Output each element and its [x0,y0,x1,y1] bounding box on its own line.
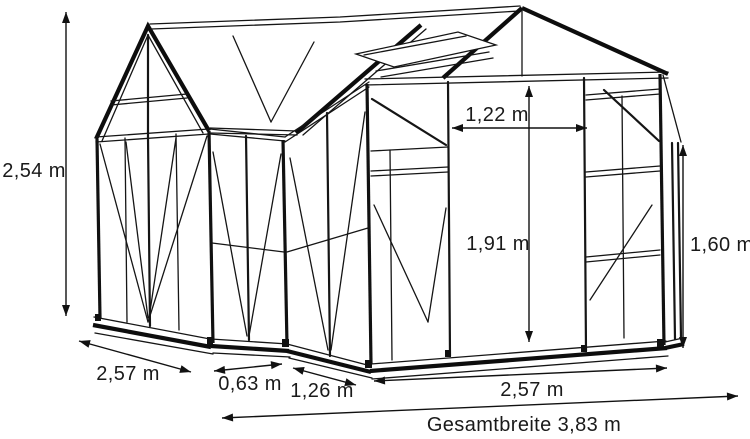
dimension-label-door-height: 1,91 m [466,233,530,255]
greenhouse-dimension-diagram: 2,54 m 1,22 m 1,91 m 1,60 m 2,57 m 0,63 … [0,0,750,439]
dimension-label-eave-height-right: 1,60 m [690,234,750,256]
dimension-label-main-front-width: 2,57 m [500,379,564,401]
left-wing-gable [93,26,213,354]
dimension-total-width: Gesamtbreite 3,83 m [222,396,738,436]
dimension-door-width: 1,22 m [452,104,587,128]
front-corner-sections [210,82,372,378]
dimension-side-return-width: 1,26 m [290,368,356,402]
dimension-label-left-wing-front-width: 2,57 m [96,363,160,385]
page: 2,54 m 1,22 m 1,91 m 1,60 m 2,57 m 0,63 … [0,0,750,439]
dimension-label-height-left: 2,54 m [2,160,66,182]
dimension-front-section-small: 0,63 m [214,364,282,395]
dimension-main-front-width: 2,57 m [374,368,667,401]
dimension-height-left: 2,54 m [2,12,66,316]
dimension-label-total-width: Gesamtbreite 3,83 m [427,414,621,436]
dimension-label-side-return-width: 1,26 m [290,380,354,402]
dimension-eave-height-right: 1,60 m [683,145,750,348]
dimension-label-door-width: 1,22 m [465,104,529,126]
dimension-label-front-section-small: 0,63 m [218,373,282,395]
roof [150,6,668,135]
